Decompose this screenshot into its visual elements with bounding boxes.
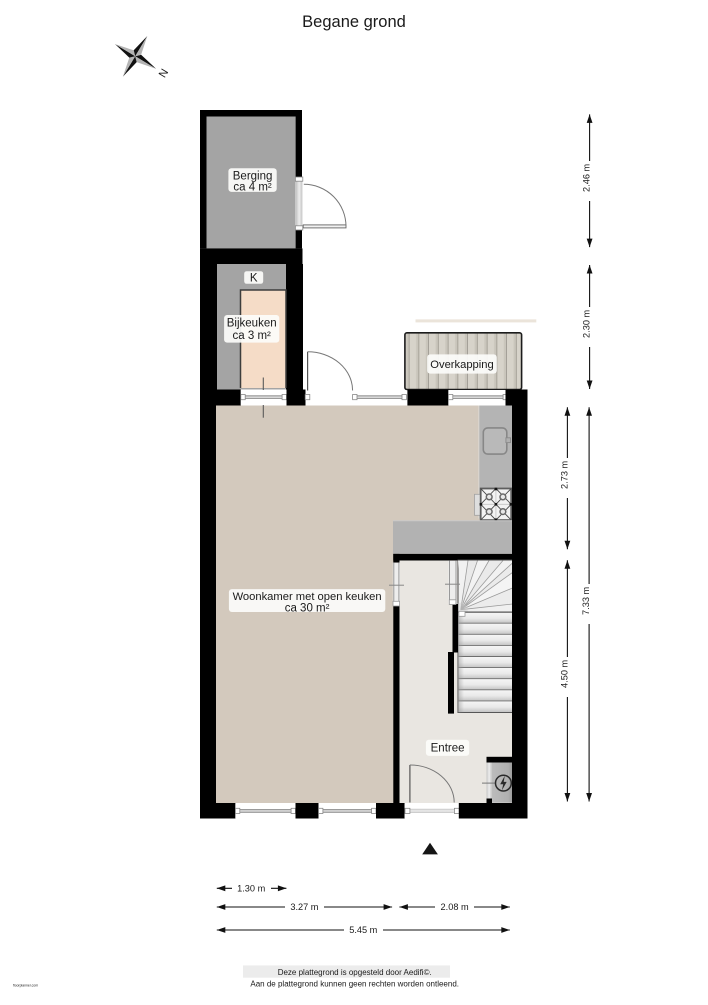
svg-text:2.30 m: 2.30 m bbox=[582, 310, 592, 338]
svg-text:3.27 m: 3.27 m bbox=[290, 902, 318, 912]
svg-text:Bijkeuken: Bijkeuken bbox=[227, 317, 277, 329]
svg-text:2.73 m: 2.73 m bbox=[559, 461, 569, 489]
svg-text:ca 3 m²: ca 3 m² bbox=[233, 330, 272, 342]
svg-text:Begane grond: Begane grond bbox=[302, 13, 406, 31]
svg-text:Entree: Entree bbox=[431, 743, 465, 755]
svg-text:ca 4 m²: ca 4 m² bbox=[233, 182, 272, 194]
svg-text:4.50 m: 4.50 m bbox=[559, 660, 569, 688]
svg-text:2.46 m: 2.46 m bbox=[582, 164, 592, 192]
svg-text:Berging: Berging bbox=[233, 170, 273, 182]
svg-text:Woonkamer met open keuken: Woonkamer met open keuken bbox=[233, 591, 382, 603]
svg-text:Overkapping: Overkapping bbox=[430, 359, 493, 371]
svg-text:Aan de plattegrond kunnen geen: Aan de plattegrond kunnen geen rechten w… bbox=[250, 980, 459, 989]
svg-text:floorplanner.com: floorplanner.com bbox=[13, 984, 38, 988]
svg-text:5.45 m: 5.45 m bbox=[349, 925, 377, 935]
svg-text:1.30 m: 1.30 m bbox=[237, 883, 265, 893]
svg-text:ca 30 m²: ca 30 m² bbox=[285, 602, 330, 614]
svg-text:Deze plattegrond is opgesteld: Deze plattegrond is opgesteld door Aedif… bbox=[278, 968, 432, 977]
svg-text:K: K bbox=[250, 273, 258, 285]
svg-text:2.08 m: 2.08 m bbox=[441, 902, 469, 912]
svg-text:7.33 m: 7.33 m bbox=[581, 587, 591, 615]
